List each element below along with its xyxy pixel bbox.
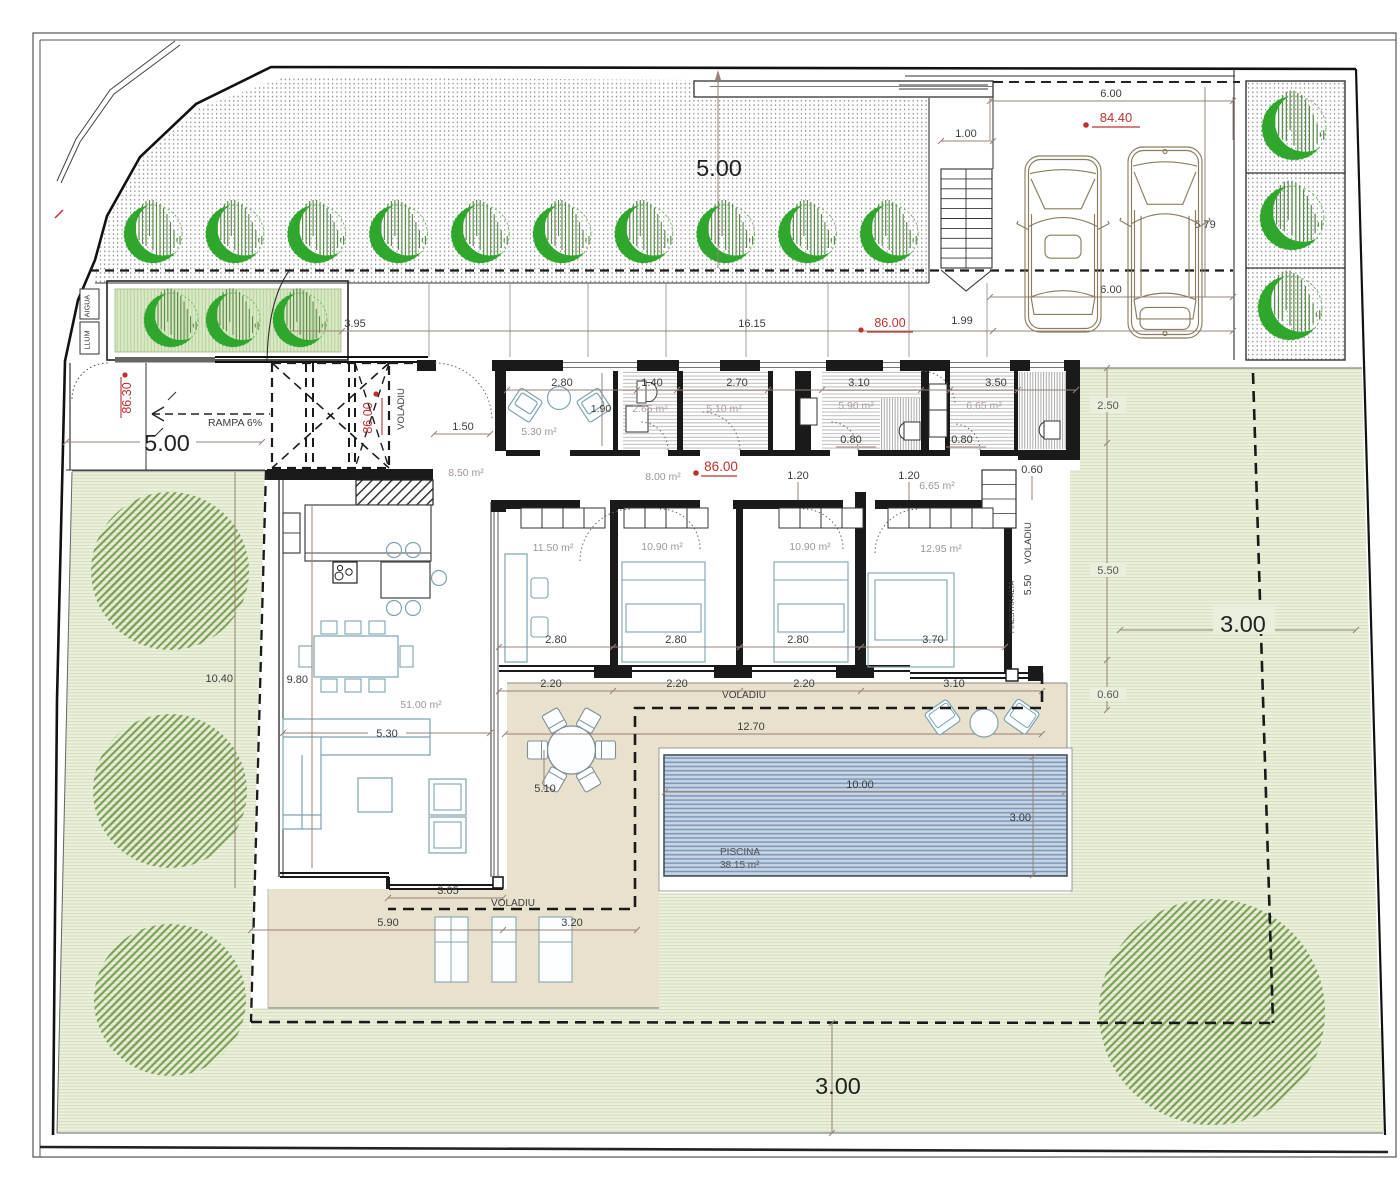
svg-text:1.50: 1.50 bbox=[452, 421, 473, 433]
svg-text:2.65 m²: 2.65 m² bbox=[632, 403, 668, 415]
svg-text:12.95 m²: 12.95 m² bbox=[920, 543, 962, 555]
svg-text:5.00: 5.00 bbox=[144, 430, 190, 456]
svg-text:3.95: 3.95 bbox=[344, 318, 365, 330]
svg-text:5.50: 5.50 bbox=[1097, 565, 1118, 577]
svg-text:10.90 m²: 10.90 m² bbox=[789, 541, 831, 553]
svg-text:3.10: 3.10 bbox=[943, 678, 964, 690]
svg-text:2.20: 2.20 bbox=[540, 678, 561, 690]
svg-text:6.65 m²: 6.65 m² bbox=[919, 480, 955, 492]
svg-text:3.70: 3.70 bbox=[922, 634, 943, 646]
svg-text:0.80: 0.80 bbox=[840, 434, 861, 446]
svg-text:1.90: 1.90 bbox=[591, 403, 612, 415]
svg-text:10.90 m²: 10.90 m² bbox=[641, 541, 683, 553]
svg-text:2.80: 2.80 bbox=[551, 377, 572, 389]
svg-text:84.40: 84.40 bbox=[1100, 110, 1133, 125]
svg-text:3.20: 3.20 bbox=[561, 917, 582, 929]
svg-text:0.60: 0.60 bbox=[1097, 689, 1118, 701]
svg-text:1.00: 1.00 bbox=[955, 128, 976, 140]
svg-text:2.80: 2.80 bbox=[787, 634, 808, 646]
svg-text:16.15: 16.15 bbox=[738, 318, 766, 330]
svg-text:5.30: 5.30 bbox=[376, 728, 397, 740]
svg-text:9.80: 9.80 bbox=[287, 674, 308, 686]
svg-text:2.80: 2.80 bbox=[665, 634, 686, 646]
svg-text:AIGUA: AIGUA bbox=[83, 295, 92, 318]
svg-text:LLUM: LLUM bbox=[83, 330, 92, 349]
svg-text:6.00: 6.00 bbox=[1100, 88, 1121, 100]
svg-text:3.50: 3.50 bbox=[985, 377, 1006, 389]
svg-text:6.79: 6.79 bbox=[1194, 219, 1215, 231]
svg-text:11.50 m²: 11.50 m² bbox=[533, 542, 574, 554]
svg-text:1.40: 1.40 bbox=[641, 377, 662, 389]
svg-text:VOLADIU: VOLADIU bbox=[491, 898, 535, 909]
svg-text:12.70: 12.70 bbox=[737, 721, 765, 733]
svg-text:1.20: 1.20 bbox=[787, 470, 808, 482]
svg-text:3.00: 3.00 bbox=[1010, 812, 1031, 824]
svg-text:2.20: 2.20 bbox=[666, 678, 687, 690]
svg-text:3.05: 3.05 bbox=[437, 885, 458, 897]
svg-text:1.99: 1.99 bbox=[951, 315, 972, 327]
svg-text:86.00: 86.00 bbox=[361, 402, 375, 433]
svg-text:RAMPA 6%: RAMPA 6% bbox=[208, 417, 262, 429]
svg-text:10.40: 10.40 bbox=[205, 673, 233, 685]
svg-text:VOLADIU: VOLADIU bbox=[722, 690, 766, 701]
svg-text:51.00 m²: 51.00 m² bbox=[400, 699, 442, 711]
svg-text:2.50: 2.50 bbox=[1097, 400, 1118, 412]
svg-text:10.00: 10.00 bbox=[846, 779, 874, 791]
svg-text:2.80: 2.80 bbox=[545, 634, 566, 646]
svg-text:86.00: 86.00 bbox=[704, 459, 738, 474]
svg-text:8.00 m²: 8.00 m² bbox=[645, 471, 681, 483]
svg-text:5.90 m²: 5.90 m² bbox=[838, 400, 874, 412]
svg-text:3.00: 3.00 bbox=[815, 1073, 861, 1099]
svg-text:3.10: 3.10 bbox=[848, 377, 869, 389]
svg-text:6.65 m²: 6.65 m² bbox=[966, 400, 1002, 412]
svg-text:3.00: 3.00 bbox=[1220, 611, 1266, 637]
svg-text:2.20: 2.20 bbox=[793, 678, 814, 690]
svg-text:5.00: 5.00 bbox=[696, 155, 742, 181]
svg-text:VOLADIU: VOLADIU bbox=[1023, 522, 1034, 564]
svg-text:8.50 m²: 8.50 m² bbox=[448, 467, 484, 479]
svg-text:2.70: 2.70 bbox=[726, 377, 747, 389]
svg-text:0.80: 0.80 bbox=[951, 434, 972, 446]
svg-text:FINESTRA ALTA: FINESTRA ALTA bbox=[1009, 581, 1016, 634]
svg-text:86.00: 86.00 bbox=[874, 316, 905, 330]
svg-text:0.60: 0.60 bbox=[1021, 464, 1042, 476]
svg-text:5.90: 5.90 bbox=[377, 917, 398, 929]
svg-text:5.30 m²: 5.30 m² bbox=[521, 426, 557, 438]
svg-text:VOLADIU: VOLADIU bbox=[396, 388, 407, 430]
svg-text:38.15 m²: 38.15 m² bbox=[720, 860, 760, 871]
svg-text:PISCINA: PISCINA bbox=[720, 847, 760, 858]
svg-text:5.10: 5.10 bbox=[534, 783, 555, 795]
svg-text:86.30: 86.30 bbox=[120, 382, 134, 413]
svg-text:5.50: 5.50 bbox=[1022, 575, 1034, 596]
svg-text:6.00: 6.00 bbox=[1100, 284, 1121, 296]
svg-text:1.20: 1.20 bbox=[898, 470, 919, 482]
